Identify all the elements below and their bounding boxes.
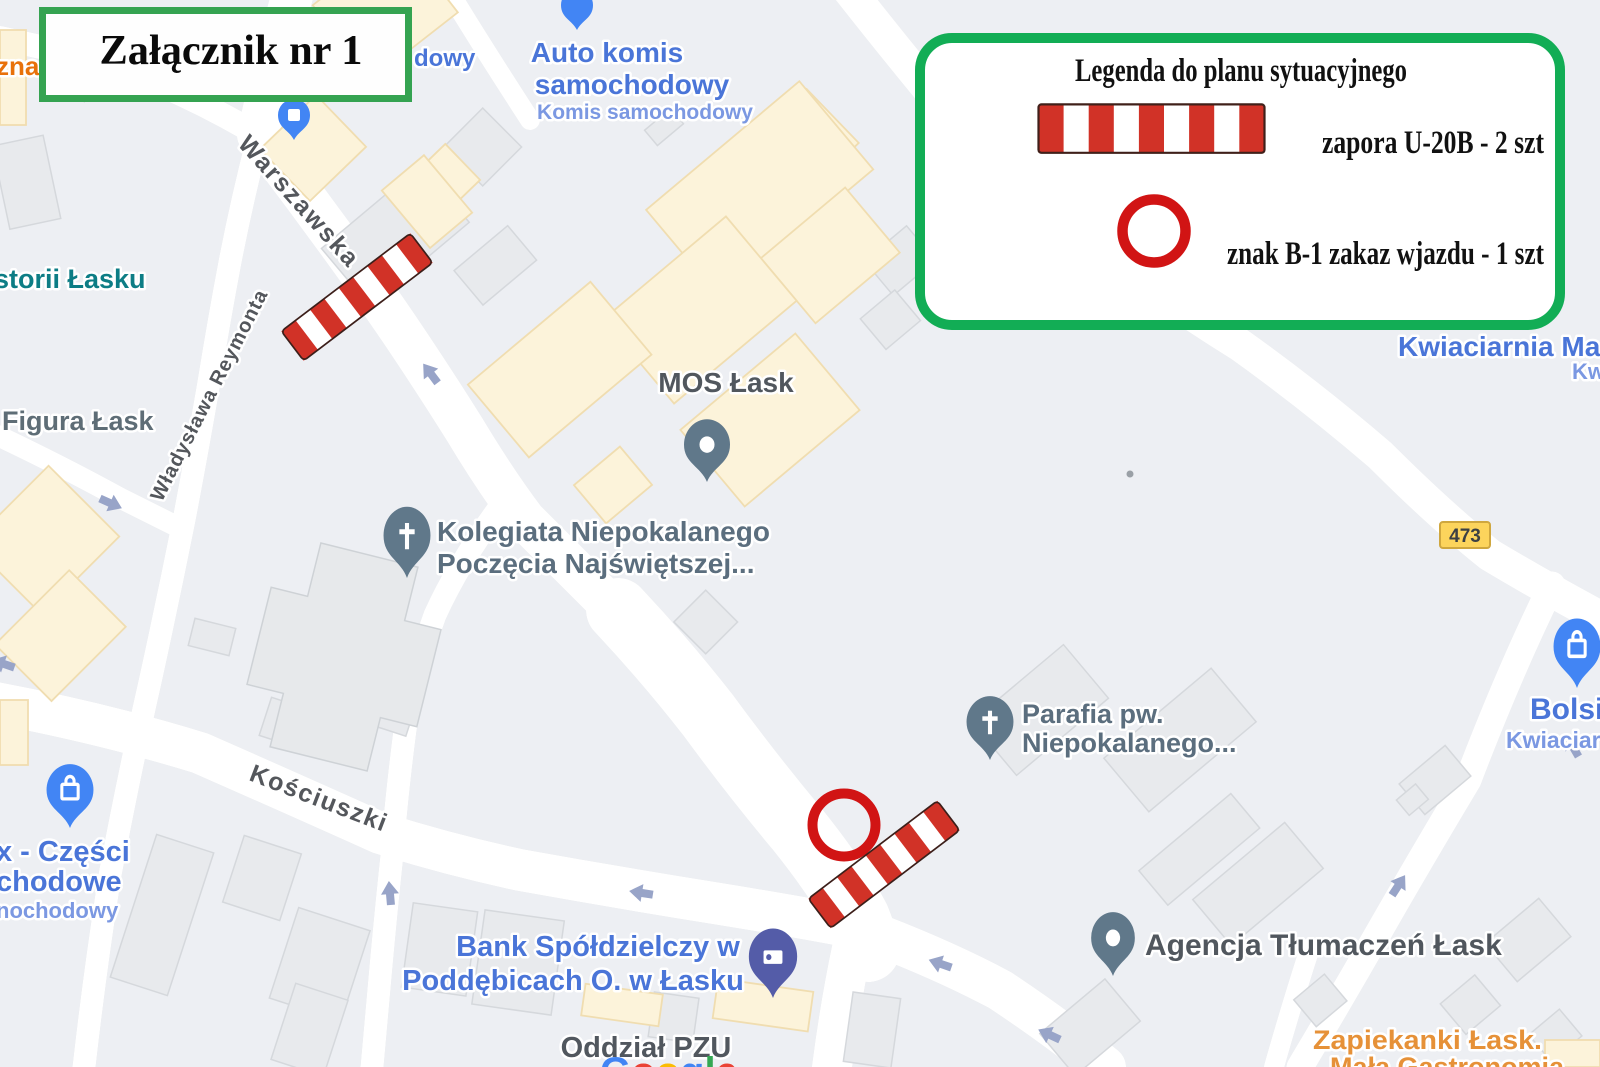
svg-text:MOS Łask: MOS Łask [658, 367, 794, 398]
svg-text:Kwiaciar: Kwiaciar [1506, 727, 1600, 753]
svg-text:Poczęcia Najświętszej...: Poczęcia Najświętszej... [437, 548, 755, 579]
svg-text:Kw: Kw [1572, 359, 1600, 384]
svg-text:Auto komis: Auto komis [531, 37, 683, 68]
svg-text:nochodowy: nochodowy [0, 898, 119, 923]
svg-text:zna: zna [0, 51, 40, 81]
svg-text:Mała Gastronomia: Mała Gastronomia [1330, 1052, 1565, 1067]
svg-text:Niepokalanego...: Niepokalanego... [1022, 728, 1237, 758]
svg-text:zapora U-20B - 2 szt: zapora U-20B - 2 szt [1322, 125, 1544, 161]
svg-text:Zapiekanki Łask.: Zapiekanki Łask. [1313, 1025, 1542, 1055]
svg-text:dowy: dowy [414, 45, 476, 72]
svg-text:Agencja Tłumaczeń Łask: Agencja Tłumaczeń Łask [1145, 929, 1502, 962]
svg-text:Kwiaciarnia Ma: Kwiaciarnia Ma [1398, 331, 1600, 362]
svg-text:Bank Spółdzielczy w: Bank Spółdzielczy w [456, 931, 740, 963]
svg-text:Poddębicach O. w Łasku: Poddębicach O. w Łasku [402, 965, 744, 997]
svg-text:samochodowy: samochodowy [535, 69, 730, 100]
svg-text:Parafia pw.: Parafia pw. [1022, 699, 1164, 729]
svg-text:Załącznik nr 1: Załącznik nr 1 [100, 28, 363, 74]
svg-text:Legenda do planu sytuacyjnego: Legenda do planu sytuacyjnego [1075, 53, 1407, 89]
svg-text:Figura Łask: Figura Łask [2, 406, 155, 436]
svg-text:x - Części: x - Części [0, 836, 130, 868]
svg-text:Google: Google [600, 1050, 738, 1067]
svg-text:473: 473 [1449, 526, 1481, 547]
svg-text:Bolsi: Bolsi [1530, 693, 1600, 726]
svg-text:znak B-1 zakaz wjazdu - 1 szt: znak B-1 zakaz wjazdu - 1 szt [1227, 236, 1544, 272]
svg-text:chodowe: chodowe [0, 866, 122, 898]
svg-text:storii Łasku: storii Łasku [0, 264, 146, 294]
svg-text:Komis samochodowy: Komis samochodowy [537, 101, 753, 124]
svg-text:Kolegiata Niepokalanego: Kolegiata Niepokalanego [437, 516, 770, 547]
